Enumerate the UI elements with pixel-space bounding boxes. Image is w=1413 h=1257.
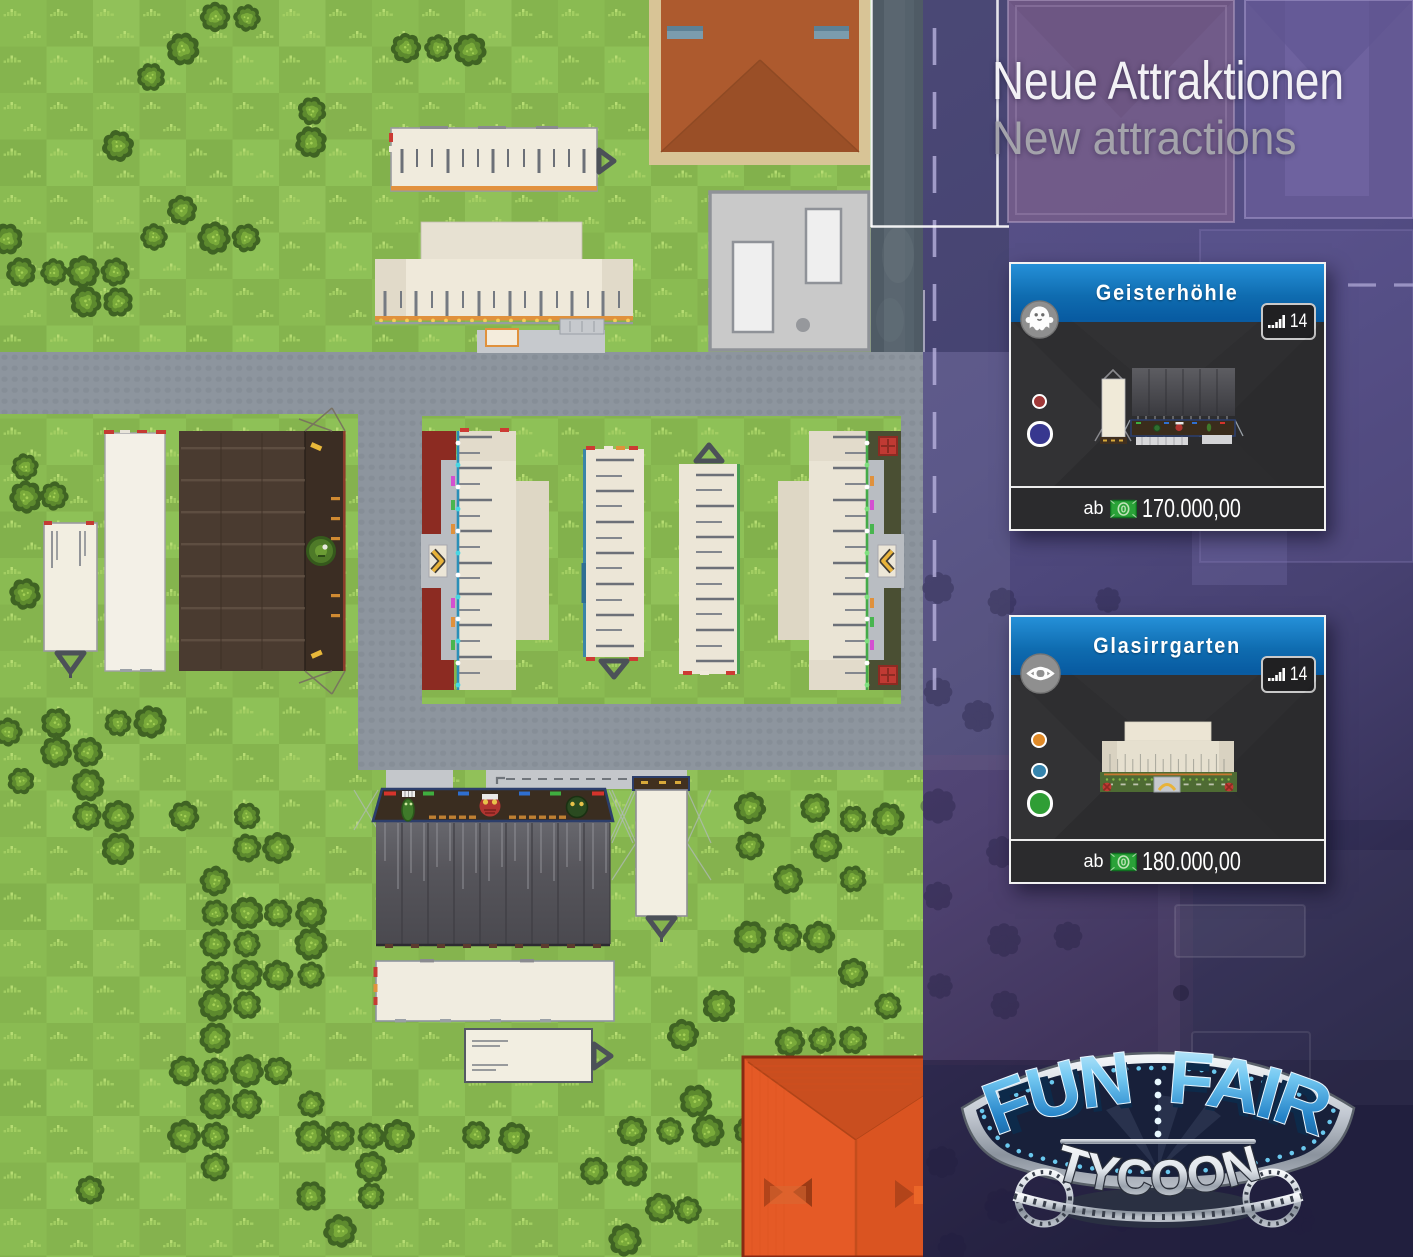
svg-text:0: 0: [1120, 857, 1126, 868]
svg-text:0: 0: [1120, 504, 1126, 515]
